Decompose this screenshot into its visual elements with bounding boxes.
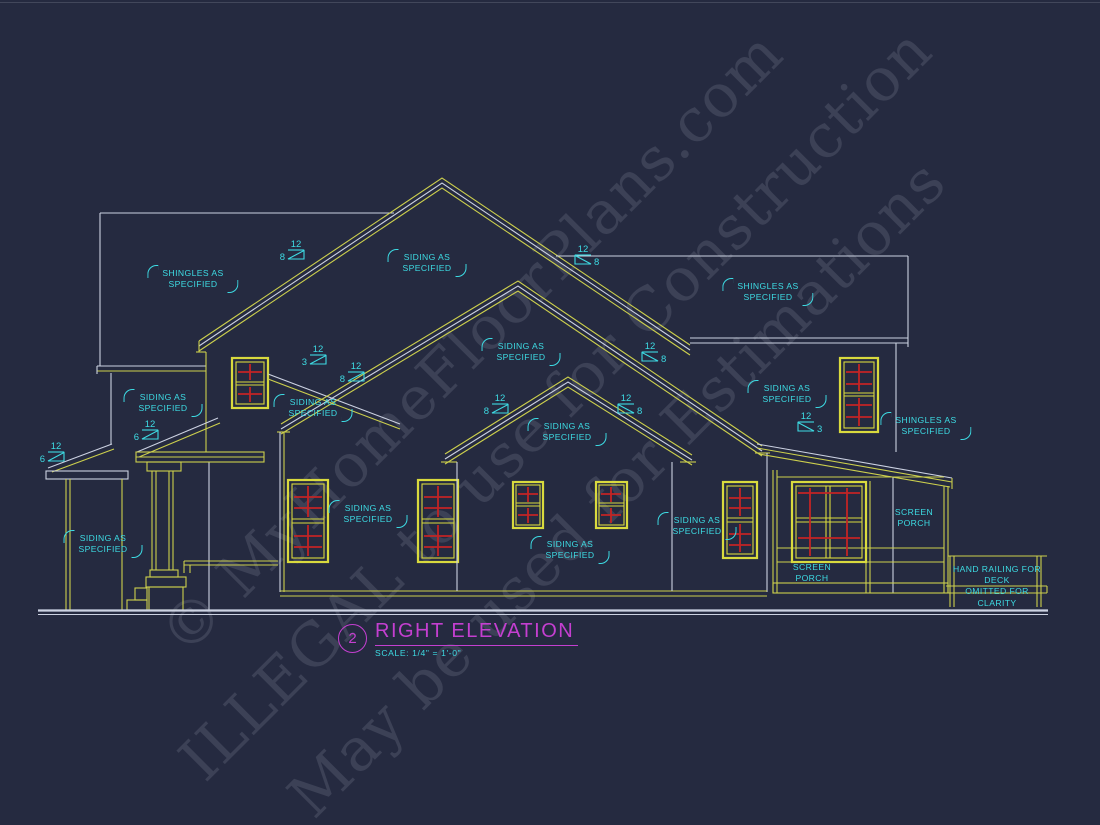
detail-number-badge: 2 bbox=[338, 624, 367, 653]
annotation-screen-porch: SCREEN PORCH bbox=[793, 562, 831, 584]
slope-mark: 12 3 bbox=[798, 411, 822, 435]
svg-text:3: 3 bbox=[302, 357, 307, 368]
svg-text:12: 12 bbox=[578, 244, 589, 255]
detail-number: 2 bbox=[348, 630, 356, 647]
annotation-siding: SIDING AS SPECIFIED bbox=[546, 539, 595, 561]
svg-text:12: 12 bbox=[645, 341, 656, 352]
annotation-siding: SIDING AS SPECIFIED bbox=[543, 421, 592, 443]
svg-text:6: 6 bbox=[134, 432, 139, 443]
drawing-scale: SCALE: 1/4" = 1'-0" bbox=[375, 648, 578, 658]
svg-text:12: 12 bbox=[801, 411, 812, 422]
annotation-siding: SIDING AS SPECIFIED bbox=[79, 533, 128, 555]
svg-text:8: 8 bbox=[594, 257, 599, 268]
slope-mark: 12 8 bbox=[280, 239, 304, 263]
main-gable-roof bbox=[196, 178, 690, 610]
ground-line bbox=[38, 611, 1048, 615]
svg-text:12: 12 bbox=[351, 361, 362, 372]
center-porch bbox=[127, 418, 278, 610]
slope-mark: 12 3 bbox=[302, 344, 326, 368]
slope-mark: 12 6 bbox=[134, 419, 158, 443]
svg-text:3: 3 bbox=[817, 424, 822, 435]
annotation-shingles: SHINGLES AS SPECIFIED bbox=[162, 268, 223, 290]
drawing-title: RIGHT ELEVATION bbox=[375, 620, 578, 646]
slope-mark: 12 8 bbox=[618, 393, 642, 417]
svg-text:12: 12 bbox=[291, 239, 302, 250]
annotation-siding: SIDING AS SPECIFIED bbox=[139, 392, 188, 414]
slope-mark: 12 8 bbox=[340, 361, 364, 385]
window bbox=[232, 358, 268, 408]
svg-text:6: 6 bbox=[40, 454, 45, 465]
window bbox=[418, 480, 458, 562]
window bbox=[723, 482, 757, 558]
window bbox=[513, 482, 543, 528]
svg-text:8: 8 bbox=[280, 252, 285, 263]
slope-mark: 12 8 bbox=[484, 393, 508, 417]
annotation-siding: SIDING AS SPECIFIED bbox=[673, 515, 722, 537]
svg-text:8: 8 bbox=[484, 406, 489, 417]
annotation-hand-railing: HAND RAILING FOR DECK OMITTED FOR CLARIT… bbox=[946, 564, 1049, 609]
svg-text:12: 12 bbox=[145, 419, 156, 430]
annotation-screen-porch: SCREEN PORCH bbox=[895, 507, 933, 529]
svg-text:8: 8 bbox=[661, 354, 666, 365]
annotation-siding: SIDING AS SPECIFIED bbox=[344, 503, 393, 525]
annotation-siding: SIDING AS SPECIFIED bbox=[403, 252, 452, 274]
title-block: 2 RIGHT ELEVATION SCALE: 1/4" = 1'-0" bbox=[338, 620, 578, 658]
svg-text:12: 12 bbox=[313, 344, 324, 355]
annotation-siding: SIDING AS SPECIFIED bbox=[763, 383, 812, 405]
annotation-siding: SIDING AS SPECIFIED bbox=[497, 341, 546, 363]
annotation-shingles: SHINGLES AS SPECIFIED bbox=[895, 415, 956, 437]
svg-text:12: 12 bbox=[495, 393, 506, 404]
svg-text:8: 8 bbox=[340, 374, 345, 385]
svg-text:12: 12 bbox=[621, 393, 632, 404]
slope-mark: 12 6 bbox=[40, 441, 64, 465]
window bbox=[288, 480, 328, 562]
annotation-shingles: SHINGLES AS SPECIFIED bbox=[737, 281, 798, 303]
second-gable-roof bbox=[277, 281, 770, 596]
annotation-siding: SIDING AS SPECIFIED bbox=[289, 397, 338, 419]
slope-mark: 12 8 bbox=[642, 341, 666, 365]
svg-text:8: 8 bbox=[637, 406, 642, 417]
window bbox=[596, 482, 627, 528]
svg-text:12: 12 bbox=[51, 441, 62, 452]
cad-elevation-sheet: © MyHomeFloorPlans.com ILLEGAL to use fo… bbox=[0, 0, 1100, 825]
window bbox=[840, 358, 878, 432]
far-left-porch bbox=[46, 444, 128, 610]
